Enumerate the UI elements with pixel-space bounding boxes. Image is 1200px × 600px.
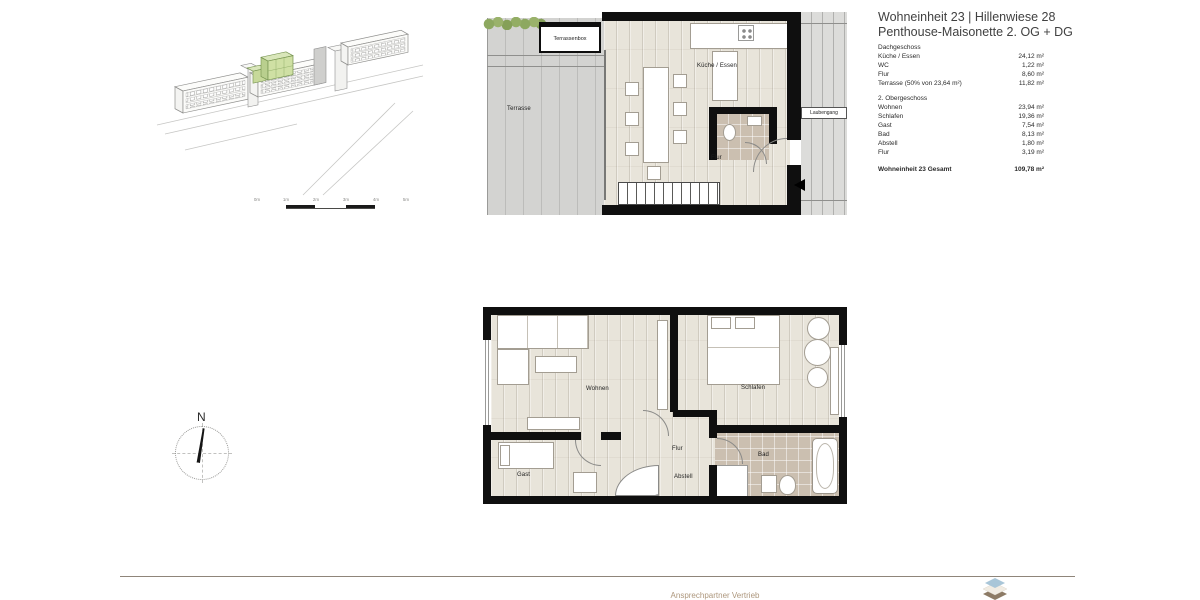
area-row-label: Flur	[878, 70, 889, 79]
pillow	[500, 445, 510, 466]
area-row: Abstell1,80 m²	[878, 139, 1044, 148]
area-row-label: Wohnen	[878, 103, 902, 112]
window-wall	[604, 50, 606, 200]
scale-segment	[286, 205, 315, 208]
wardrobe	[830, 347, 839, 415]
area-row: Wohnen23,94 m²	[878, 103, 1044, 112]
wall	[483, 496, 847, 504]
area-row-label: Terrasse (50% von 23,64 m²)	[878, 79, 962, 88]
bed-fold-line	[708, 347, 779, 348]
wall	[491, 432, 581, 440]
floorplan-obergeschoss: Wohnen Schlafen Gast Flur Abstell Bad	[483, 307, 847, 504]
area-row-label: Gast	[878, 121, 892, 130]
stairs	[618, 182, 720, 205]
wall	[602, 12, 798, 21]
laubengang-label-box: Laubengang	[801, 107, 847, 119]
area-row-value: 1,80 m²	[1022, 139, 1044, 148]
terrace-line	[487, 55, 606, 56]
wall	[601, 432, 621, 440]
title-line-2: Penthouse-Maisonette 2. OG + DG	[878, 25, 1073, 40]
sofa	[497, 315, 589, 349]
scale-tick: 2m	[313, 197, 319, 202]
scale-bar: 0m 1m 2m 3m 4m 5m	[255, 197, 425, 213]
area-row-value: 3,19 m²	[1022, 148, 1044, 157]
room-label: Gast	[517, 472, 530, 478]
room-label: Bad	[758, 452, 769, 458]
site-building-right	[341, 29, 408, 67]
area-total-label: Wohneinheit 23 Gesamt	[878, 165, 952, 174]
area-section-heading: 2. Obergeschoss	[878, 94, 1044, 103]
area-row-label: Abstell	[878, 139, 898, 148]
scale-tick: 4m	[373, 197, 379, 202]
area-row-label: Küche / Essen	[878, 52, 920, 61]
room-label: Terrasse	[507, 106, 531, 112]
area-row-value: 8,60 m²	[1022, 70, 1044, 79]
scale-tick: 3m	[343, 197, 349, 202]
chair	[673, 74, 687, 88]
chair	[625, 112, 639, 126]
room-label: Flur	[672, 446, 683, 452]
scale-tick: 5m	[403, 197, 409, 202]
wall	[717, 425, 839, 433]
area-row-label: Flur	[878, 148, 889, 157]
room-label: Schlafen	[741, 385, 765, 391]
stove-icon	[738, 25, 754, 41]
company-logo-icon	[981, 578, 1009, 600]
floorplan-dachgeschoss: Terrassenbox Terrasse Küche / Essen Flur	[483, 10, 847, 215]
wall	[483, 307, 847, 315]
toilet-icon	[779, 475, 796, 495]
laubengang-line	[801, 23, 847, 24]
scale-tick: 1m	[283, 197, 289, 202]
wall	[602, 205, 798, 215]
coffee-table	[535, 356, 577, 373]
footer-divider	[120, 576, 1075, 577]
area-row: Flur8,60 m²	[878, 70, 1044, 79]
area-row: Bad8,13 m²	[878, 130, 1044, 139]
scale-tick: 0m	[254, 197, 260, 202]
area-row-value: 8,13 m²	[1022, 130, 1044, 139]
sofa	[497, 349, 529, 385]
sheet-title: Wohneinheit 23 | Hillenwiese 28 Penthous…	[878, 10, 1073, 40]
kitchen-island	[712, 51, 738, 101]
wall	[673, 410, 717, 417]
bathtub	[812, 438, 838, 494]
area-total-row: Wohneinheit 23 Gesamt109,78 m²	[878, 165, 1044, 174]
room-label: Laubengang	[810, 110, 838, 116]
wall	[709, 107, 777, 114]
chair	[673, 130, 687, 144]
footer-contact-label: Ansprechpartner Vertrieb	[640, 591, 790, 600]
toilet-icon	[723, 124, 736, 141]
area-row: Flur3,19 m²	[878, 148, 1044, 157]
area-row-value: 1,22 m²	[1022, 61, 1044, 70]
north-compass: N	[170, 410, 236, 482]
chair	[673, 102, 687, 116]
area-section-heading: Dachgeschoss	[878, 43, 1044, 52]
wall	[709, 417, 717, 438]
area-row: Terrasse (50% von 23,64 m²)11,82 m²	[878, 79, 1044, 88]
pillow	[711, 317, 731, 329]
pillow	[735, 317, 755, 329]
washbasin-icon	[761, 475, 777, 493]
area-row-value: 19,36 m²	[1018, 112, 1044, 121]
room-label: Flur	[711, 155, 722, 161]
room-label: Wohnen	[586, 386, 609, 392]
entrance-arrow-icon	[794, 179, 805, 191]
wall	[670, 315, 678, 412]
chair	[625, 82, 639, 96]
site-building-left	[175, 71, 248, 115]
wall	[787, 12, 801, 140]
area-row: Gast7,54 m²	[878, 121, 1044, 130]
tv-board	[657, 320, 668, 410]
title-line-1: Wohneinheit 23 | Hillenwiese 28	[878, 10, 1073, 25]
area-row: Küche / Essen24,12 m²	[878, 52, 1044, 61]
room-terrassenbox: Terrassenbox	[539, 22, 601, 53]
floorplan-sheet: 0m 1m 2m 3m 4m 5m Terrassenbox Terrasse	[0, 0, 1200, 600]
pouf-chair	[807, 317, 830, 340]
wall	[709, 465, 717, 496]
chair	[625, 142, 639, 156]
pouf-chair	[804, 339, 831, 366]
sink-icon	[747, 116, 762, 126]
area-row-value: 24,12 m²	[1018, 52, 1044, 61]
sideboard	[527, 417, 580, 430]
area-table: Dachgeschoss Küche / Essen24,12 m² WC1,2…	[878, 43, 1044, 174]
room-label: Küche / Essen	[697, 63, 737, 69]
area-row-value: 11,82 m²	[1019, 79, 1044, 88]
room-label: Abstell	[674, 474, 693, 480]
laubengang-line	[801, 200, 847, 201]
site-isometric-drawing	[155, 18, 425, 196]
hedge-icon	[483, 17, 547, 30]
area-total-value: 109,78 m²	[1014, 165, 1044, 174]
area-row-label: Bad	[878, 130, 890, 139]
area-row-value: 23,94 m²	[1018, 103, 1044, 112]
dining-table	[643, 67, 669, 163]
window	[483, 340, 491, 425]
closet-abstell	[715, 465, 748, 496]
area-row-label: Schlafen	[878, 112, 903, 121]
wall	[709, 114, 717, 160]
area-row: WC1,22 m²	[878, 61, 1044, 70]
area-row-label: WC	[878, 61, 889, 70]
window	[839, 345, 847, 417]
terrace-line	[487, 66, 606, 67]
room-label: Terrassenbox	[553, 36, 586, 42]
area-row: Schlafen19,36 m²	[878, 112, 1044, 121]
scale-segment	[346, 205, 375, 208]
chair	[647, 166, 661, 180]
north-label: N	[197, 410, 206, 424]
pouf-chair	[807, 367, 828, 388]
area-row-value: 7,54 m²	[1022, 121, 1044, 130]
nightstand	[573, 472, 597, 493]
scale-baseline	[286, 208, 375, 209]
